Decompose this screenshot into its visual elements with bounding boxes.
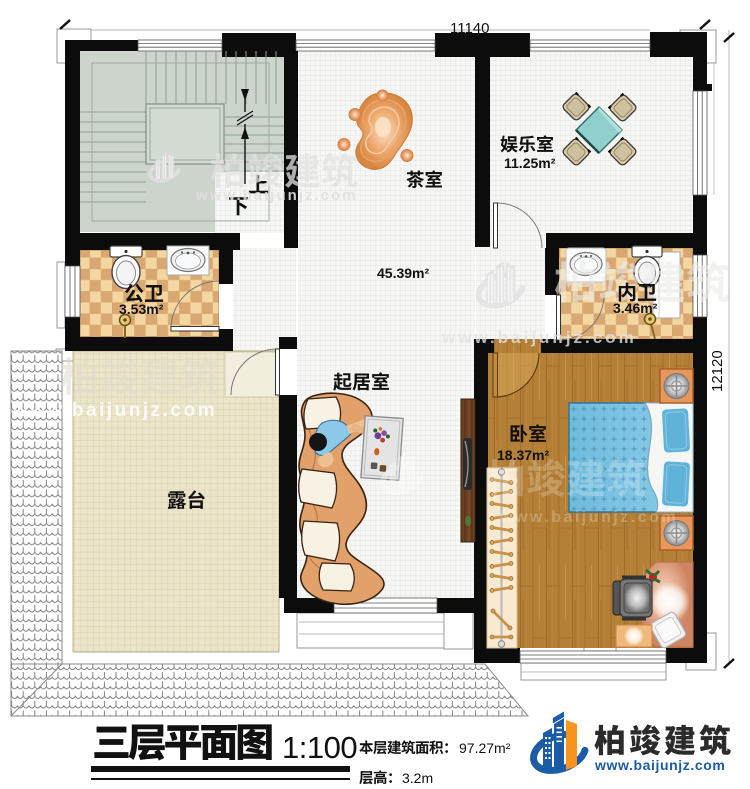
svg-text:3.2m: 3.2m [402, 770, 433, 786]
svg-text:www.baijunjz.com: www.baijunjz.com [12, 400, 217, 421]
svg-text:11.25m²: 11.25m² [504, 155, 556, 171]
svg-text:www.baijunjz.com: www.baijunjz.com [594, 757, 725, 773]
svg-text:97.27m²: 97.27m² [459, 740, 511, 756]
svg-text:3.46m²: 3.46m² [613, 300, 658, 316]
svg-text:11140: 11140 [450, 20, 490, 37]
svg-text:12120: 12120 [709, 350, 726, 392]
svg-text:www.baijunjz.com: www.baijunjz.com [441, 328, 637, 347]
svg-text:45.39m²: 45.39m² [377, 265, 429, 281]
svg-text:3.53m²: 3.53m² [119, 301, 164, 317]
svg-text:www.baijunjz.com: www.baijunjz.com [195, 187, 357, 204]
svg-text:18.37m²: 18.37m² [497, 447, 549, 463]
svg-text:1:100: 1:100 [282, 730, 357, 765]
svg-text:www.baijunjz.com: www.baijunjz.com [499, 509, 678, 526]
